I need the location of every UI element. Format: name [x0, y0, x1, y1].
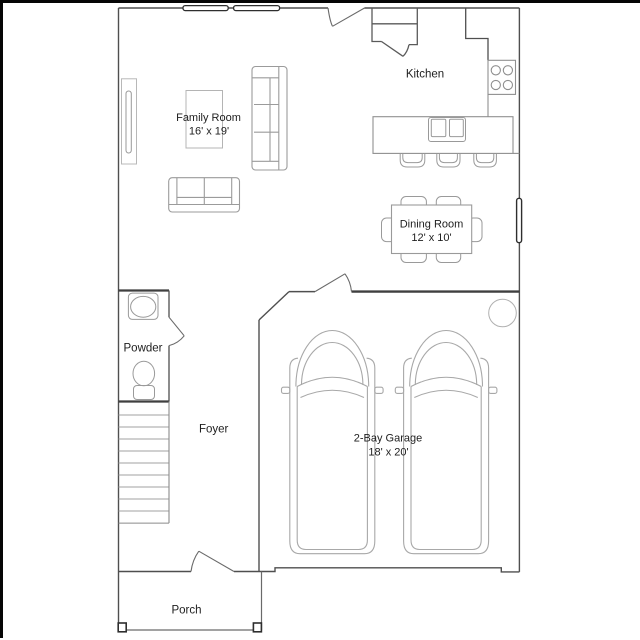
svg-text:Family Room: Family Room: [176, 112, 241, 124]
svg-text:Kitchen: Kitchen: [406, 68, 444, 80]
svg-text:18' x 20': 18' x 20': [368, 447, 408, 459]
svg-text:Foyer: Foyer: [199, 424, 229, 436]
svg-text:16' x 19': 16' x 19': [189, 126, 229, 138]
svg-text:2-Bay Garage: 2-Bay Garage: [354, 433, 422, 445]
svg-text:12' x 10': 12' x 10': [411, 232, 451, 244]
svg-text:Powder: Powder: [124, 342, 163, 354]
svg-text:Dining Room: Dining Room: [400, 219, 464, 231]
svg-text:Porch: Porch: [171, 605, 201, 617]
